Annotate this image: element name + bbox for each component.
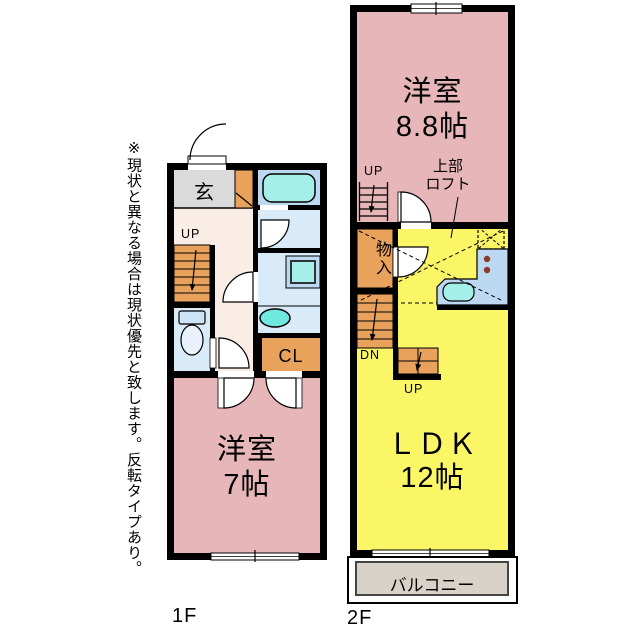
toilet-tank: [179, 311, 205, 324]
wall-segment: [254, 371, 266, 378]
bedroom-2f-size: 8.8帖: [357, 110, 508, 145]
floorplan-graphic: [0, 0, 640, 640]
wall-segment: [393, 229, 398, 247]
door-opening: [401, 222, 431, 229]
genkan-label: 玄: [174, 176, 234, 205]
loft-note-line1: 上部: [413, 158, 483, 176]
shoe-cabinet: [235, 170, 253, 208]
wall-segment: [393, 374, 441, 380]
bedroom-1f-size: 7帖: [174, 468, 320, 503]
bedroom-1f-label: 洋室 7帖: [174, 433, 320, 503]
balcony-label: バルコニー: [356, 571, 508, 596]
stove-burner: [484, 267, 490, 273]
loft-note-label: 上部 ロフト: [413, 158, 483, 194]
wall-segment: [210, 245, 215, 338]
door-opening: [253, 272, 258, 302]
washing-machine: [291, 261, 315, 283]
door-leaf: [296, 378, 302, 408]
bedroom-2f-label: 洋室 8.8帖: [357, 75, 508, 145]
bedroom-1f-name: 洋室: [174, 433, 320, 468]
door-leaf: [218, 378, 224, 408]
loft-ladder-label: UP: [364, 164, 383, 178]
loft-note-line2: ロフト: [413, 176, 483, 194]
wall-segment: [258, 333, 320, 338]
stove-burner: [484, 256, 490, 262]
stairs-up-label-2f: UP: [404, 382, 423, 396]
toilet-bowl: [181, 325, 203, 355]
ldk-label: ＬＤＫ 12帖: [357, 429, 508, 495]
bathtub: [263, 174, 315, 202]
kitchen-sink: [443, 283, 474, 301]
wall-segment: [258, 248, 320, 253]
wash-basin: [260, 309, 290, 327]
floorplan-canvas: ※現状と異なる場合は現状優先と致します。反転タイプあり。 玄 UP CL 洋室 …: [0, 0, 640, 640]
entrance-door-leaf: [188, 156, 226, 164]
door-opening: [266, 371, 302, 378]
wall-segment: [253, 170, 258, 272]
door-opening: [260, 205, 288, 210]
door-opening: [218, 371, 254, 378]
ldk-size: 12帖: [357, 462, 508, 495]
stairs-up-label-1f: UP: [181, 227, 200, 241]
storage-label: 物入: [357, 233, 393, 285]
stairs-down-label-2f: DN: [360, 348, 380, 362]
door-leaf: [393, 247, 398, 277]
closet-label: CL: [262, 346, 320, 367]
disclaimer-note: ※現状と異なる場合は現状優先と致します。反転タイプあり。: [123, 139, 144, 569]
wall-segment: [174, 302, 215, 308]
window-top-2f: [411, 2, 462, 15]
wall-segment: [253, 302, 258, 378]
wall-segment: [431, 222, 508, 229]
entrance-door-arc: [190, 124, 226, 160]
floor-2f-label: 2F: [347, 607, 372, 630]
floor-1f-label: 1F: [172, 605, 197, 628]
door-leaf: [210, 338, 216, 368]
wall-segment: [393, 277, 398, 375]
wall-segment: [174, 371, 218, 378]
wall-segment: [357, 222, 401, 229]
bedroom-2f-name: 洋室: [357, 75, 508, 110]
ldk-name: ＬＤＫ: [357, 429, 508, 462]
wall-segment: [302, 371, 320, 378]
